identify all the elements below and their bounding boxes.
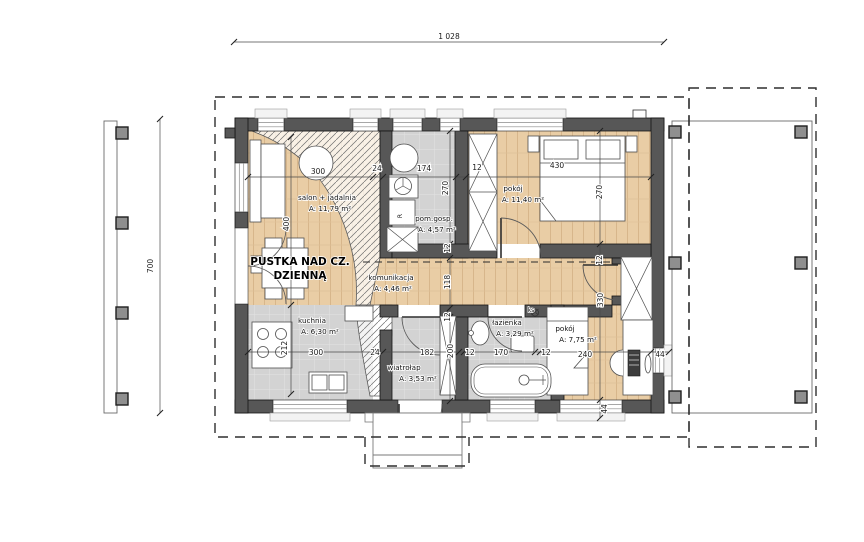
dim-182: 182 <box>420 348 435 357</box>
room-area-kuchnia: A: 6,30 m² <box>301 327 339 336</box>
room-area-salon: A: 11,79 m² <box>309 204 351 213</box>
window-left-salon <box>235 163 248 212</box>
dim-174: 174 <box>417 164 432 173</box>
dim-330: 330 <box>596 293 605 308</box>
left-eave-strip <box>104 121 117 413</box>
sofa-back <box>250 140 261 222</box>
wall-top-6 <box>563 118 664 131</box>
bathtub <box>471 364 551 397</box>
wall-left-2 <box>235 212 248 228</box>
wall-bottom-2 <box>347 400 398 413</box>
room-label-kuchnia: kuchnia <box>298 316 326 325</box>
toilet <box>511 336 534 352</box>
overall-height-label: 700 <box>146 259 155 274</box>
dim-270-right: 270 <box>595 185 604 200</box>
room-label-pokoj-2: pokój <box>555 324 574 333</box>
wall-right-1 <box>651 118 664 348</box>
room-label-lazienka: łazienka <box>492 318 522 327</box>
window-bottom-kitchen <box>273 400 347 413</box>
dining-chair <box>265 238 282 249</box>
dim-12-bot2: 12 <box>541 348 551 357</box>
left-post <box>116 307 128 319</box>
dim-12-right: 12 <box>595 255 604 265</box>
window-bottom-bedroom2 <box>560 400 622 413</box>
terrace-post <box>795 391 807 403</box>
dim-44-bottom: 44 <box>600 404 609 414</box>
wall-left-1 <box>235 118 248 163</box>
room-area-wiatrolap: A: 3,53 m² <box>399 374 437 383</box>
room-label-komunikacja: komunikacja <box>368 273 413 282</box>
dining-chair <box>287 288 304 299</box>
room-label-pom-gosp: pom.gosp. <box>415 214 453 223</box>
room-label-wiatrolap: wiatrołap <box>387 363 421 372</box>
ks-label: ks <box>528 307 535 314</box>
floor-plan-canvas: 1 028 700 salon + jadalniaA: 11,79 m²pom… <box>0 0 864 542</box>
left-post <box>116 217 128 229</box>
dim-170: 170 <box>494 348 509 357</box>
terrace-post <box>795 257 807 269</box>
wall-vestibule-bathroom <box>455 317 468 400</box>
dim-300-top: 300 <box>311 167 326 176</box>
dim-12-bot1: 12 <box>465 348 475 357</box>
entrance-porch <box>373 413 462 468</box>
dim-430: 430 <box>550 161 565 170</box>
window-top-utility <box>393 118 422 131</box>
dim-12-mid1: 12 <box>443 243 452 253</box>
floor-plan-drawing: 1 028 700 salon + jadalniaA: 11,79 m²pom… <box>0 0 864 542</box>
desk-equipment <box>628 350 640 376</box>
wall-top-5 <box>460 118 497 131</box>
dim-24-top: 24 <box>372 164 382 173</box>
room-area-pokoj-1: A: 11,40 m² <box>502 195 544 204</box>
void-label-line2: DZIENNĄ <box>273 270 327 282</box>
nightstand <box>528 136 539 152</box>
dim-24-bot: 24 <box>370 348 380 357</box>
window-top-small <box>440 118 460 131</box>
window-top-salon <box>258 118 284 131</box>
nightstand <box>626 136 637 152</box>
wall-bottom-4 <box>535 400 560 413</box>
dining-chair <box>265 288 282 299</box>
right-terrace <box>672 121 812 413</box>
overall-width-label: 1 028 <box>438 32 460 41</box>
kitchen-cabinet <box>345 306 373 321</box>
dining-table <box>262 248 308 288</box>
void-label-line1: PUSTKA NAD CZ. <box>250 256 349 268</box>
wall-corridor-bottom-1 <box>380 305 398 317</box>
wall-top-2 <box>284 118 353 131</box>
pillow <box>544 140 578 159</box>
terrace-post <box>669 391 681 403</box>
boiler <box>390 144 418 172</box>
bathtub-drain <box>519 375 529 385</box>
window-top-stair <box>353 118 378 131</box>
room-area-komunikacja: A: 4,46 m² <box>374 284 412 293</box>
terrace-post <box>669 257 681 269</box>
wall-bedroom2-stub-bottom <box>612 296 622 305</box>
dim-200: 200 <box>446 344 455 359</box>
left-post <box>116 393 128 405</box>
window-top-bedroom1 <box>497 118 563 131</box>
wall-bedroom2-stub-top <box>612 258 622 264</box>
appliance-r <box>389 200 415 225</box>
dim-300-bot: 300 <box>309 348 324 357</box>
balcony-door-opening <box>235 228 248 304</box>
room-label-salon: salon + jadalnia <box>298 193 356 202</box>
dim-12-mid2: 12 <box>443 312 452 322</box>
dining-chair <box>287 238 304 249</box>
left-post <box>116 127 128 139</box>
chimney <box>633 110 646 118</box>
room-area-pokoj-2: A: 7,75 m² <box>559 335 597 344</box>
dim-118: 118 <box>443 275 452 290</box>
corner-pilaster <box>225 128 235 138</box>
wall-left-3 <box>235 304 248 413</box>
dim-240: 240 <box>578 350 593 359</box>
room-area-lazienka: A: 3,29 m² <box>496 329 534 338</box>
dim-12-top: 12 <box>472 163 482 172</box>
appliance-r-label: R <box>397 214 404 218</box>
terrace-post <box>795 126 807 138</box>
room-area-pom-gosp: A: 4,57 m² <box>418 225 456 234</box>
window-bottom-bathroom <box>490 400 535 413</box>
terrace-post <box>669 126 681 138</box>
sofa-seat <box>261 144 285 218</box>
room-label-pokoj-1: pokój <box>503 184 522 193</box>
wardrobe-bedroom1 <box>469 134 497 251</box>
dim-44-right: 44 <box>655 350 665 359</box>
dim-400: 400 <box>282 217 291 232</box>
desk-lamp <box>645 355 651 373</box>
dim-270-left: 270 <box>441 181 450 196</box>
wall-top-3 <box>378 118 393 131</box>
entrance-door-opening <box>398 400 442 413</box>
dim-212: 212 <box>280 341 289 356</box>
wall-top-4 <box>422 118 440 131</box>
pillow <box>586 140 620 159</box>
wall-utility-bedroom1 <box>455 131 468 258</box>
